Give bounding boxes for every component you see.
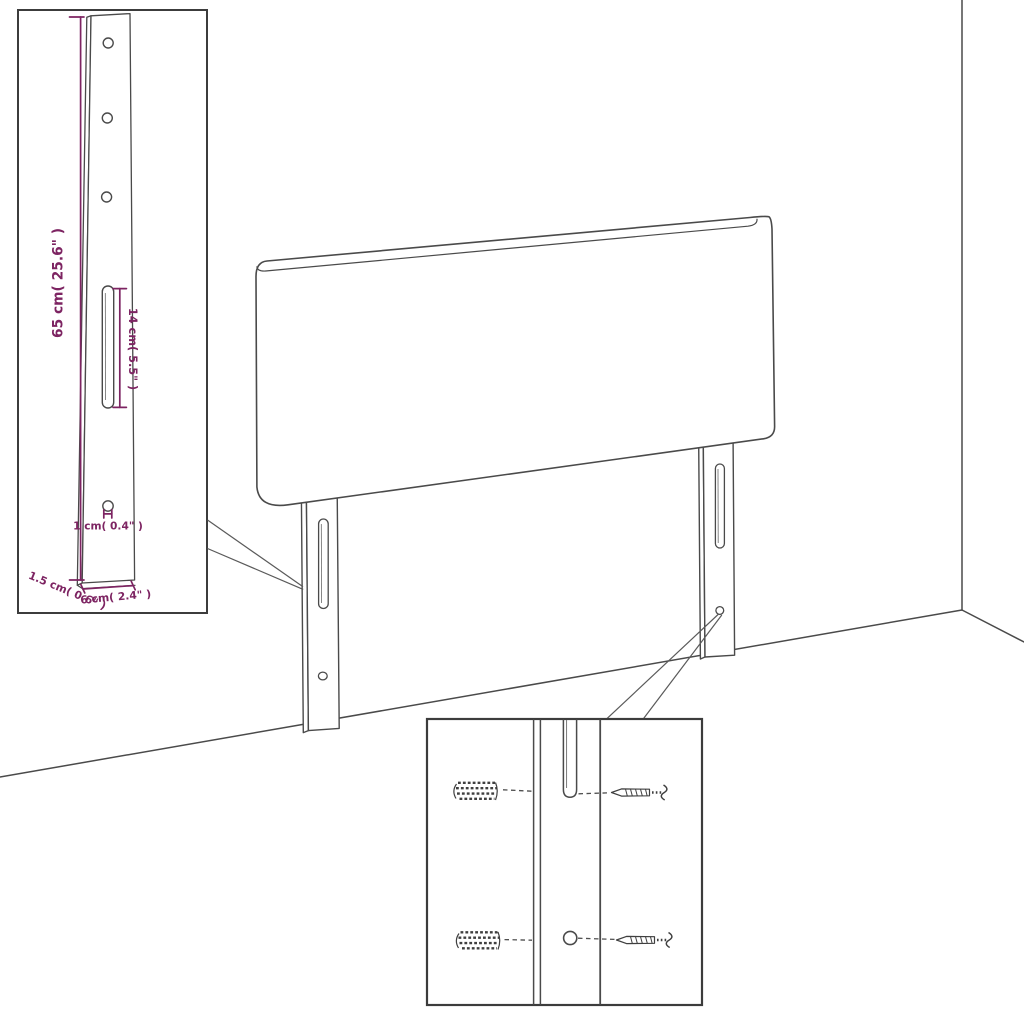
headboard-assembly-diagram: 65 cm( 25.6" ) 14 cm( 5.5" ) 1 cm( 0.4" … (0, 0, 1024, 1024)
right-leg-mounting-hole (716, 607, 724, 615)
hardware-inset-frame (427, 719, 702, 1005)
slot-dimension-label: 14 cm( 5.5" ) (126, 308, 139, 390)
right-leg (699, 428, 735, 659)
detail-leg-hole (564, 931, 577, 944)
bracket-hole-lower (102, 192, 112, 202)
right-leg-slot (715, 464, 724, 548)
bracket-hole-middle (102, 113, 112, 123)
hole-dimension-label: 1 cm( 0.4" ) (73, 521, 143, 533)
height-dimension-label: 65 cm( 25.6" ) (51, 228, 67, 338)
hardware-detail-inset (427, 719, 702, 1005)
left-leg (301, 468, 339, 732)
bracket-slot (102, 286, 113, 408)
left-leg-slot (319, 519, 329, 609)
bracket-detail-inset: 65 cm( 25.6" ) 14 cm( 5.5" ) 1 cm( 0.4" … (18, 10, 207, 613)
left-leg-hole (318, 672, 327, 680)
bracket-hole-top (103, 38, 113, 48)
